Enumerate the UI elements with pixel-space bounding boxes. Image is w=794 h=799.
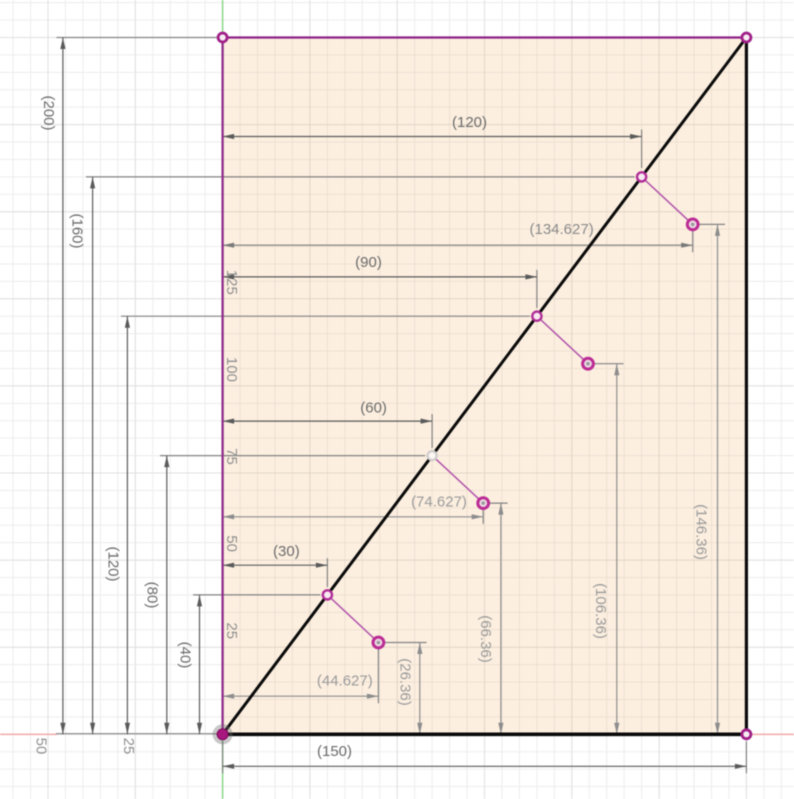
svg-text:50: 50 xyxy=(32,738,49,755)
svg-text:(80): (80) xyxy=(144,582,161,609)
svg-text:(200): (200) xyxy=(40,95,57,130)
svg-text:50: 50 xyxy=(223,535,240,552)
svg-text:(44.627): (44.627) xyxy=(317,673,373,690)
svg-text:(120): (120) xyxy=(452,114,487,131)
svg-text:(160): (160) xyxy=(69,213,86,248)
svg-text:(60): (60) xyxy=(360,400,387,417)
svg-text:25: 25 xyxy=(120,738,137,755)
svg-text:100: 100 xyxy=(223,357,240,382)
svg-text:(30): (30) xyxy=(273,543,300,560)
svg-text:(106.36): (106.36) xyxy=(592,583,609,639)
svg-text:(26.36): (26.36) xyxy=(397,658,414,706)
svg-text:75: 75 xyxy=(223,448,240,465)
svg-text:(150): (150) xyxy=(317,743,352,760)
svg-text:25: 25 xyxy=(223,622,240,639)
svg-text:(40): (40) xyxy=(177,642,194,669)
svg-text:(74.627): (74.627) xyxy=(411,494,467,511)
svg-text:(66.36): (66.36) xyxy=(477,615,494,663)
svg-text:(90): (90) xyxy=(355,254,382,271)
svg-text:125: 125 xyxy=(223,270,240,295)
svg-text:(120): (120) xyxy=(105,546,122,581)
svg-text:(134.627): (134.627) xyxy=(529,221,593,238)
svg-text:(146.36): (146.36) xyxy=(693,504,710,560)
